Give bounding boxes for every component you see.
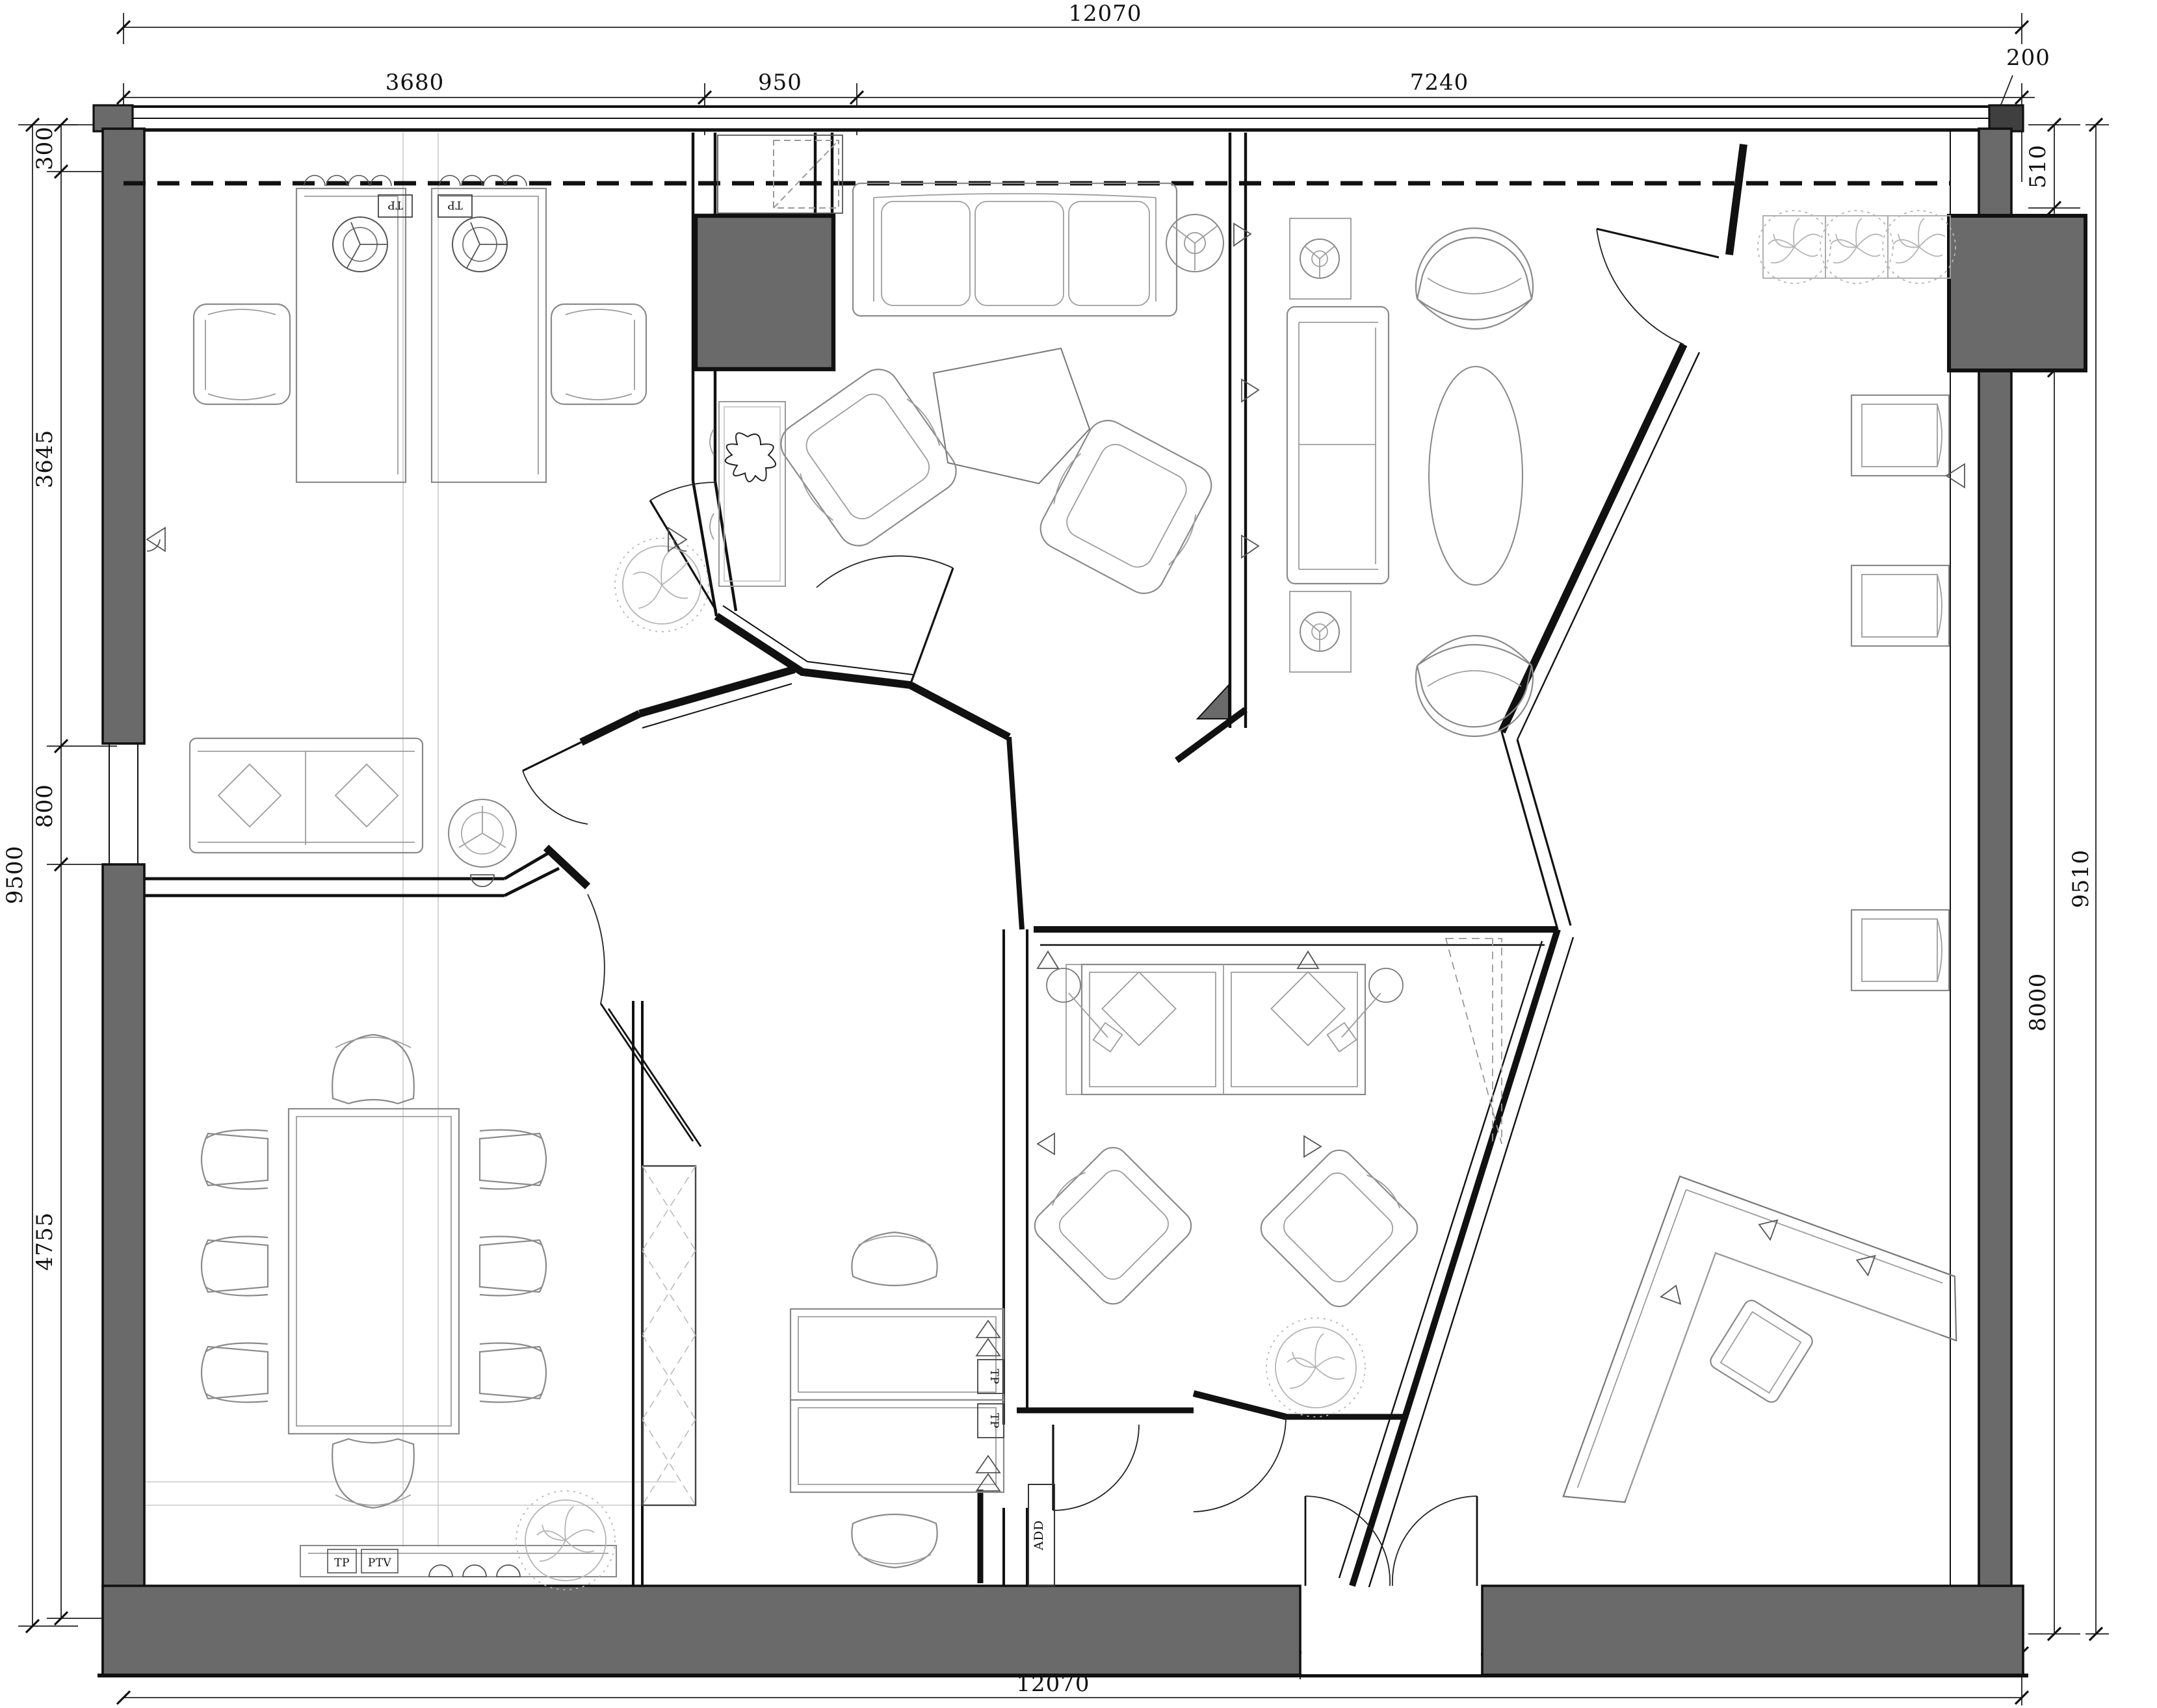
hub-door-frame-west: [581, 714, 640, 742]
desk-lamp-1: [333, 217, 387, 272]
tp-label-4: TP: [987, 1413, 1000, 1429]
round-side-table: [449, 799, 516, 886]
room-conference: TP PTV: [202, 1035, 616, 1590]
dim-right-seg3: 8000: [2025, 973, 2051, 1032]
add-box: ADD: [1028, 1484, 1054, 1586]
right-column: [1949, 216, 2085, 370]
tp-label-5: TP: [334, 1557, 350, 1570]
door-leaf: [910, 568, 953, 685]
dim-left-seg3: 800: [32, 784, 58, 828]
door-swing-arc: [817, 556, 953, 588]
room-meeting: [1242, 218, 1533, 736]
door-swing-arc: [1194, 1417, 1286, 1512]
tub-chair-bottom: [1416, 636, 1533, 736]
sofa-end-table: [1166, 214, 1223, 272]
office-plant: [615, 538, 709, 632]
speaker-icons: [429, 1565, 520, 1577]
closet-wall: [815, 133, 832, 216]
tp-label-1: TP: [387, 198, 403, 211]
door-swing-arc: [588, 894, 605, 1003]
door-leaf: [1597, 229, 1719, 257]
door-swing-arc: [650, 482, 716, 500]
tall-cabinet: [642, 1166, 696, 1505]
wall-wedge: [1197, 685, 1229, 719]
console-table: [710, 402, 785, 586]
treatment-plant: [1266, 1318, 1365, 1417]
dim-top-seg2: 950: [758, 70, 802, 96]
dimensions-top: 12070 3680 950 7240 200: [117, 1, 2050, 182]
bottom-wall-right: [1482, 1586, 2023, 1676]
desk-2: [432, 188, 546, 482]
door-swing-arc: [523, 771, 588, 824]
closet-dashed: [1446, 938, 1502, 1144]
add-label: ADD: [1032, 1520, 1046, 1551]
coffee-table: [934, 348, 1090, 484]
tub-chair-top: [1416, 228, 1533, 329]
bed: [1066, 964, 1365, 1094]
meeting-sofa: [1287, 307, 1389, 584]
room-office: TP TP: [147, 175, 709, 886]
meeting-door: [1597, 229, 1719, 344]
bedside-lamp-left: [1047, 968, 1122, 1052]
desk-upper: [791, 1309, 1004, 1400]
bottom-wall-left: [103, 1586, 1300, 1676]
chair-top: [852, 1232, 937, 1286]
treatment-armchair-left: [1026, 1139, 1197, 1310]
cabinet-hatch: [642, 1166, 696, 1505]
wall-light-icon: [471, 875, 494, 886]
meeting-door-frame: [1729, 144, 1744, 255]
dim-left-seg4: 4755: [32, 1212, 58, 1271]
dim-top-offset: 200: [2006, 45, 2050, 71]
conference-chairs-right: [480, 1130, 546, 1403]
desk-lower: [791, 1400, 1004, 1492]
conference-east-wall: [633, 1001, 642, 1586]
top-left-corner-column: [94, 105, 133, 131]
vestibule-door: [1053, 1425, 1139, 1510]
entry-double-door: [1300, 1496, 1482, 1674]
wall-light-icon: [1234, 224, 1251, 246]
dim-left-overall: 9500: [2, 846, 28, 905]
conference-chairs-left: [202, 1130, 268, 1403]
office-south-wall: [144, 851, 559, 896]
hub-door-frame-south: [546, 848, 588, 886]
tree-icon: [1758, 211, 1831, 283]
interior-walls: [144, 133, 1744, 1591]
hub-west-door: [523, 742, 588, 824]
bedroom-door: [1194, 1393, 1286, 1512]
left-window-frame: [109, 744, 138, 864]
treatment-armchair-right: [1255, 1142, 1426, 1313]
lounge-meeting-wall: [1230, 133, 1246, 728]
area-reception: [1563, 1176, 1977, 1605]
desk-lamp-2: [452, 217, 507, 272]
waiting-chair-3: [1851, 910, 1949, 990]
hub-wall-b: [640, 669, 794, 714]
waiting-chair-1: [1851, 395, 1949, 476]
oval-table: [1429, 367, 1523, 585]
dim-top-seg3: 7240: [1410, 70, 1469, 96]
dim-left-seg1: 300: [32, 126, 58, 170]
office-chair-right: [551, 304, 646, 404]
lounge-armchair-left: [771, 360, 967, 556]
office-chair-left: [194, 304, 290, 404]
hub-wall-c: [910, 685, 1009, 737]
door-leaf: [601, 1003, 701, 1146]
door-swing-arc: [1053, 1425, 1139, 1510]
decor-plant-icon: [726, 433, 776, 482]
reception-chair: [1708, 1297, 1815, 1404]
office-sofa: [190, 738, 423, 853]
closet-outline: [718, 135, 843, 213]
top-right-corner-cap: [1989, 105, 2023, 131]
bedroom-east-wall: [1352, 929, 1558, 1586]
ptv-label: PTV: [368, 1557, 392, 1570]
left-wall-lower: [103, 864, 144, 1676]
side-table-top: [1290, 218, 1351, 299]
closet-dashed: [774, 140, 839, 208]
reception-desk: [1563, 1176, 1977, 1605]
hub-wall-a: [716, 616, 910, 685]
center-column: [696, 216, 833, 369]
door-swing-arcs: [1305, 1496, 1477, 1586]
desk-1: [296, 188, 406, 482]
media-cabinet: TP PTV: [300, 1546, 616, 1577]
tp-label-2: TP: [447, 198, 463, 211]
meeting-east-wall: [1502, 344, 1684, 732]
door-leaves: [1305, 1496, 1477, 1586]
conference-chair-bottom: [332, 1439, 414, 1508]
dim-top-overall: 12070: [1068, 1, 1142, 27]
area-waiting: [1758, 211, 1965, 990]
left-wall-upper: [103, 129, 144, 744]
conference-chair-top: [332, 1035, 414, 1104]
grid-guides: [124, 133, 676, 1547]
conference-table: [289, 1109, 459, 1434]
dimensions-left: 9500 300 3645 800 4755: [2, 118, 117, 1633]
dim-right-overall: 9510: [2068, 849, 2094, 909]
dim-top-seg1: 3680: [386, 70, 445, 96]
tp-label-3: TP: [987, 1369, 1000, 1384]
chair-bottom: [852, 1514, 937, 1568]
floor-plan-page: 12070 3680 950 7240 200 9500 300 3645 80…: [0, 0, 2157, 1708]
office-door: [650, 482, 716, 611]
bedroom-west-wall: [1004, 929, 1027, 1586]
wall-light-icon: [1661, 1192, 1875, 1361]
dim-right-seg1: 510: [2025, 144, 2051, 188]
dim-left-seg2: 3645: [32, 430, 58, 489]
conference-door: [588, 894, 701, 1146]
sofa-3seat: [853, 183, 1177, 316]
waiting-chair-2: [1851, 565, 1949, 646]
door-leaf: [1194, 1393, 1286, 1417]
area-desk-niche: TP TP ADD: [791, 1232, 1054, 1586]
door-leaf: [523, 742, 581, 771]
floor-plan-drawing: 12070 3680 950 7240 200 9500 300 3645 80…: [0, 0, 2157, 1708]
bedroom-south-wall: [1017, 1410, 1407, 1417]
wall-light-icon: [147, 528, 165, 551]
planter-row: [1758, 211, 1955, 283]
side-table-bottom: [1290, 591, 1351, 672]
hall-east-wall: [1009, 737, 1022, 929]
lounge-armchair-right: [1031, 412, 1221, 602]
